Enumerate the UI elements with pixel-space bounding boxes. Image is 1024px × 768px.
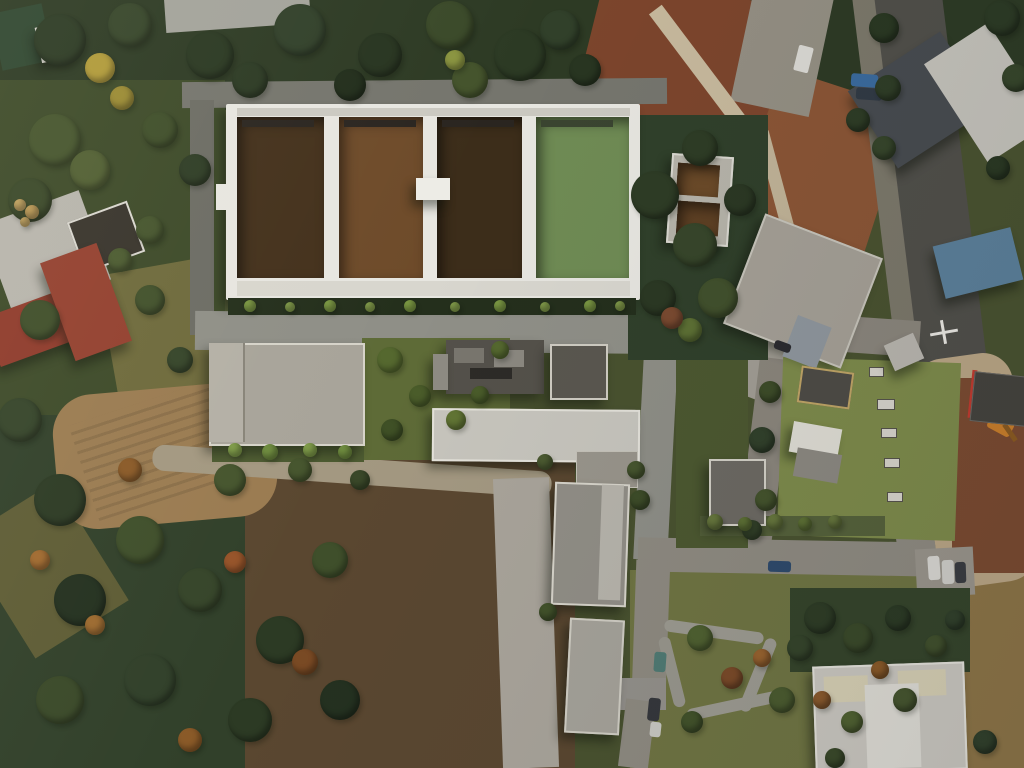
tree-canopy — [584, 300, 596, 312]
tree-canopy — [755, 489, 777, 511]
tree-canopy — [682, 130, 718, 166]
tree-canopy — [945, 610, 965, 630]
tree-canopy — [687, 625, 713, 651]
tree-canopy — [872, 136, 896, 160]
tree-canopy — [20, 300, 60, 340]
tree-canopy — [338, 445, 352, 459]
tree-canopy — [404, 300, 416, 312]
tree-canopy — [30, 550, 50, 570]
tree-canopy — [135, 285, 165, 315]
tree-canopy — [288, 458, 312, 482]
tree-canopy — [540, 10, 580, 50]
tree-canopy — [973, 730, 997, 754]
tree-canopy — [124, 654, 176, 706]
tree-canopy — [14, 199, 26, 211]
tree-canopy — [285, 302, 295, 312]
tree-canopy — [787, 635, 813, 661]
tree-canopy — [698, 278, 738, 318]
tree-canopy — [34, 474, 86, 526]
tree-canopy — [885, 605, 911, 631]
car-teal-parked — [653, 652, 666, 673]
equipment-unit-a — [454, 348, 484, 363]
tree-canopy — [875, 75, 901, 101]
tree-canopy — [471, 386, 489, 404]
construction-building-dark — [970, 371, 1024, 427]
sludge-tank-north — [676, 163, 720, 198]
tree-canopy — [846, 108, 870, 132]
tree-canopy — [491, 341, 509, 359]
tree-canopy — [494, 300, 506, 312]
tree-canopy — [179, 154, 211, 186]
lawn-vent-box — [887, 492, 903, 502]
tree-canopy — [681, 711, 703, 733]
tree-canopy — [85, 53, 115, 83]
tree-canopy — [324, 300, 336, 312]
substation-structure — [797, 365, 855, 409]
tree-canopy — [825, 748, 845, 768]
tree-canopy — [569, 54, 601, 86]
tree-canopy — [365, 302, 375, 312]
tree-canopy — [262, 444, 278, 460]
tree-canopy — [20, 217, 30, 227]
tree-canopy — [871, 661, 889, 679]
tree-canopy — [0, 398, 42, 442]
tree-canopy — [167, 347, 193, 373]
tree-canopy — [984, 0, 1020, 36]
tree-canopy — [707, 514, 723, 530]
aerial-photo-canvas — [0, 0, 1024, 768]
tree-canopy — [118, 458, 142, 482]
tree-canopy — [925, 635, 947, 657]
aerial-photo-scene — [0, 0, 1024, 768]
tree-canopy — [228, 698, 272, 742]
tree-canopy — [615, 301, 625, 311]
tree-canopy — [673, 223, 717, 267]
scum-channel-row — [237, 281, 630, 296]
van-white-2 — [942, 560, 955, 584]
tree-canopy — [381, 419, 403, 441]
tree-canopy — [178, 568, 222, 612]
tree-canopy — [630, 490, 650, 510]
basin-1-grating — [242, 120, 314, 127]
tree-canopy — [759, 381, 781, 403]
tree-canopy — [232, 62, 268, 98]
tree-canopy — [767, 514, 783, 530]
tree-canopy — [539, 603, 557, 621]
tree-canopy — [986, 156, 1010, 180]
tree-canopy — [334, 69, 366, 101]
van-white-1 — [927, 556, 941, 581]
tree-canopy — [540, 302, 550, 312]
tree-canopy — [769, 687, 795, 713]
car-white-parked — [649, 721, 662, 737]
tree-canopy — [244, 300, 256, 312]
tree-canopy — [843, 623, 873, 653]
tree-canopy — [224, 551, 246, 573]
tree-canopy — [186, 31, 234, 79]
tree-canopy — [85, 615, 105, 635]
pump-house — [550, 344, 608, 400]
tree-canopy — [312, 542, 348, 578]
tree-canopy — [738, 517, 752, 531]
basin-3-grating — [442, 120, 514, 127]
tree-canopy — [34, 14, 86, 66]
tree-canopy — [798, 517, 812, 531]
tree-canopy — [108, 248, 132, 272]
tree-canopy — [450, 302, 460, 312]
tree-canopy — [804, 602, 836, 634]
lawn-vent-box — [884, 458, 900, 468]
tree-canopy — [749, 427, 775, 453]
tree-canopy — [377, 347, 403, 373]
tree-canopy — [627, 461, 645, 479]
tree-canopy — [274, 4, 326, 56]
tree-canopy — [136, 216, 164, 244]
car-sedan-road — [768, 561, 791, 573]
tree-canopy — [828, 515, 842, 529]
tree-canopy — [116, 516, 164, 564]
tree-canopy — [214, 464, 246, 496]
tree-canopy — [721, 667, 743, 689]
center-platform — [416, 178, 450, 200]
lawn-vent-box — [881, 428, 897, 438]
basin-2-grating — [344, 120, 416, 127]
car-dark-right — [955, 562, 967, 583]
tree-canopy — [631, 171, 679, 219]
tree-canopy — [108, 3, 152, 47]
equipment-tower — [433, 354, 448, 390]
aeration-basin-1 — [237, 117, 324, 278]
tree-canopy — [724, 184, 756, 216]
clarifier-basin-green — [536, 117, 629, 278]
tree-canopy — [869, 13, 899, 43]
blower-west-wing — [209, 343, 243, 442]
office-building-1-roof-light — [598, 485, 624, 601]
tree-canopy — [228, 443, 242, 457]
aeration-basin-2 — [339, 117, 423, 278]
tree-canopy — [753, 649, 771, 667]
tree-canopy — [426, 1, 474, 49]
tree-canopy — [178, 728, 202, 752]
tree-canopy — [494, 29, 546, 81]
tree-canopy — [537, 454, 553, 470]
tree-canopy — [661, 307, 683, 329]
tree-canopy — [893, 688, 917, 712]
tree-canopy — [303, 443, 317, 457]
tree-canopy — [36, 676, 84, 724]
tree-canopy — [813, 691, 831, 709]
tree-canopy — [409, 385, 431, 407]
tree-canopy — [142, 112, 178, 148]
tree-canopy — [292, 649, 318, 675]
plant-west-apron — [190, 100, 214, 335]
tree-canopy — [70, 150, 110, 190]
tree-canopy — [446, 410, 466, 430]
equipment-unit-b — [470, 368, 512, 379]
office-building-2 — [564, 618, 625, 736]
basin-4-grating — [541, 120, 613, 127]
tree-canopy — [841, 711, 863, 733]
tree-canopy — [110, 86, 134, 110]
tree-canopy — [358, 33, 402, 77]
lawn-vent-box — [869, 367, 884, 377]
blower-wing-divider — [243, 343, 245, 442]
tree-canopy — [350, 470, 370, 490]
weir-strip-north — [237, 108, 630, 116]
tree-canopy — [445, 50, 465, 70]
road-light-south — [493, 477, 559, 768]
car-dark-parked — [647, 697, 661, 721]
tree-canopy — [1002, 64, 1024, 92]
tree-canopy — [320, 680, 360, 720]
west-pier — [216, 184, 230, 210]
lawn-vent-box — [877, 399, 895, 410]
